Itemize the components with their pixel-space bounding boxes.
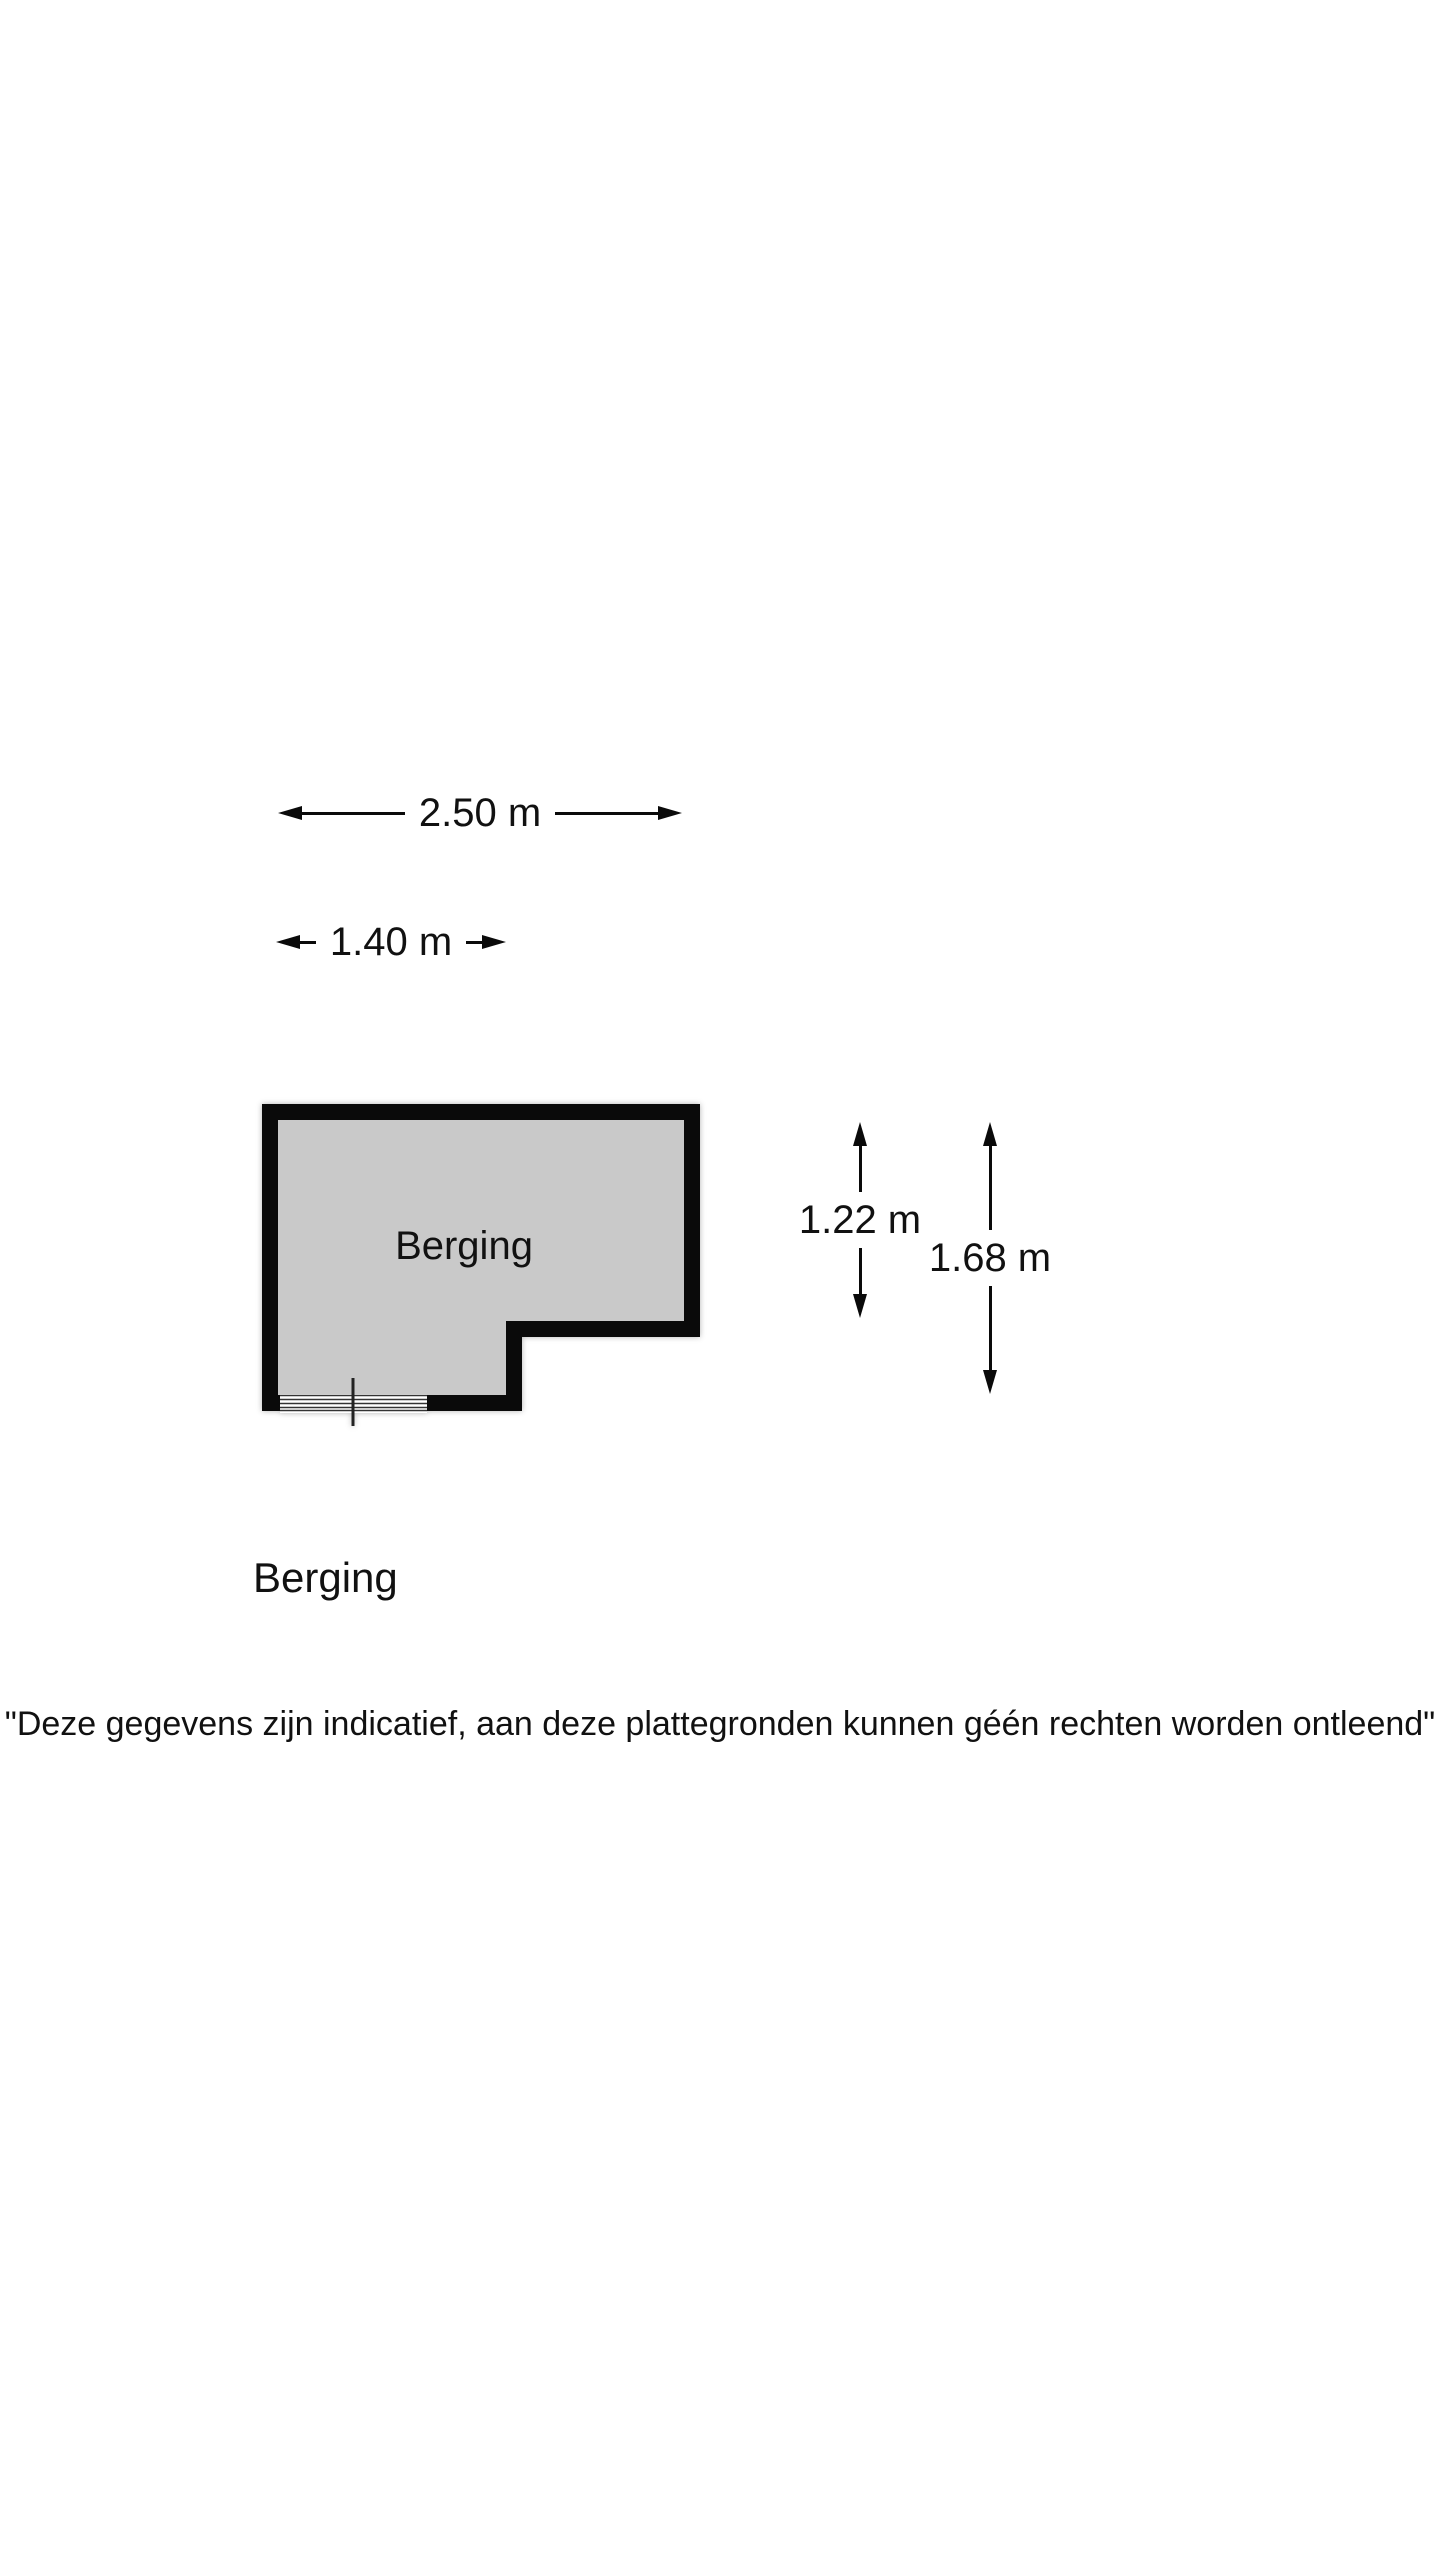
room-label: Berging xyxy=(364,1226,564,1266)
arrow-down-icon xyxy=(983,1370,997,1394)
dimension-line xyxy=(300,941,316,944)
floorplan-page: 2.50 m 1.40 m 1.22 m 1.68 m Berging Berg… xyxy=(0,0,1440,2560)
dimension-partial-height: 1.22 m xyxy=(798,1122,922,1318)
dimension-total-width: 2.50 m xyxy=(278,791,682,835)
section-title: Berging xyxy=(253,1557,398,1599)
arrow-down-icon xyxy=(853,1294,867,1318)
dimension-label-total-height: 1.68 m xyxy=(929,1230,1051,1286)
floor-plan-svg xyxy=(0,0,1440,2560)
arrow-up-icon xyxy=(853,1122,867,1146)
arrow-left-icon xyxy=(278,806,302,820)
dimension-label-partial-width: 1.40 m xyxy=(316,922,466,962)
dimension-line xyxy=(989,1286,992,1370)
dimension-line xyxy=(466,941,482,944)
dimension-line xyxy=(859,1248,862,1294)
arrow-up-icon xyxy=(983,1122,997,1146)
dimension-line xyxy=(859,1146,862,1192)
dimension-line xyxy=(989,1146,992,1230)
arrow-left-icon xyxy=(276,935,300,949)
arrow-right-icon xyxy=(658,806,682,820)
arrow-right-icon xyxy=(482,935,506,949)
dimension-total-height: 1.68 m xyxy=(928,1122,1052,1394)
dimension-label-partial-height: 1.22 m xyxy=(799,1192,921,1248)
dimension-label-total-width: 2.50 m xyxy=(405,793,555,833)
dimension-line xyxy=(302,812,405,815)
dimension-line xyxy=(555,812,658,815)
disclaimer-text: "Deze gegevens zijn indicatief, aan deze… xyxy=(0,1704,1440,1745)
dimension-partial-width: 1.40 m xyxy=(276,920,506,964)
